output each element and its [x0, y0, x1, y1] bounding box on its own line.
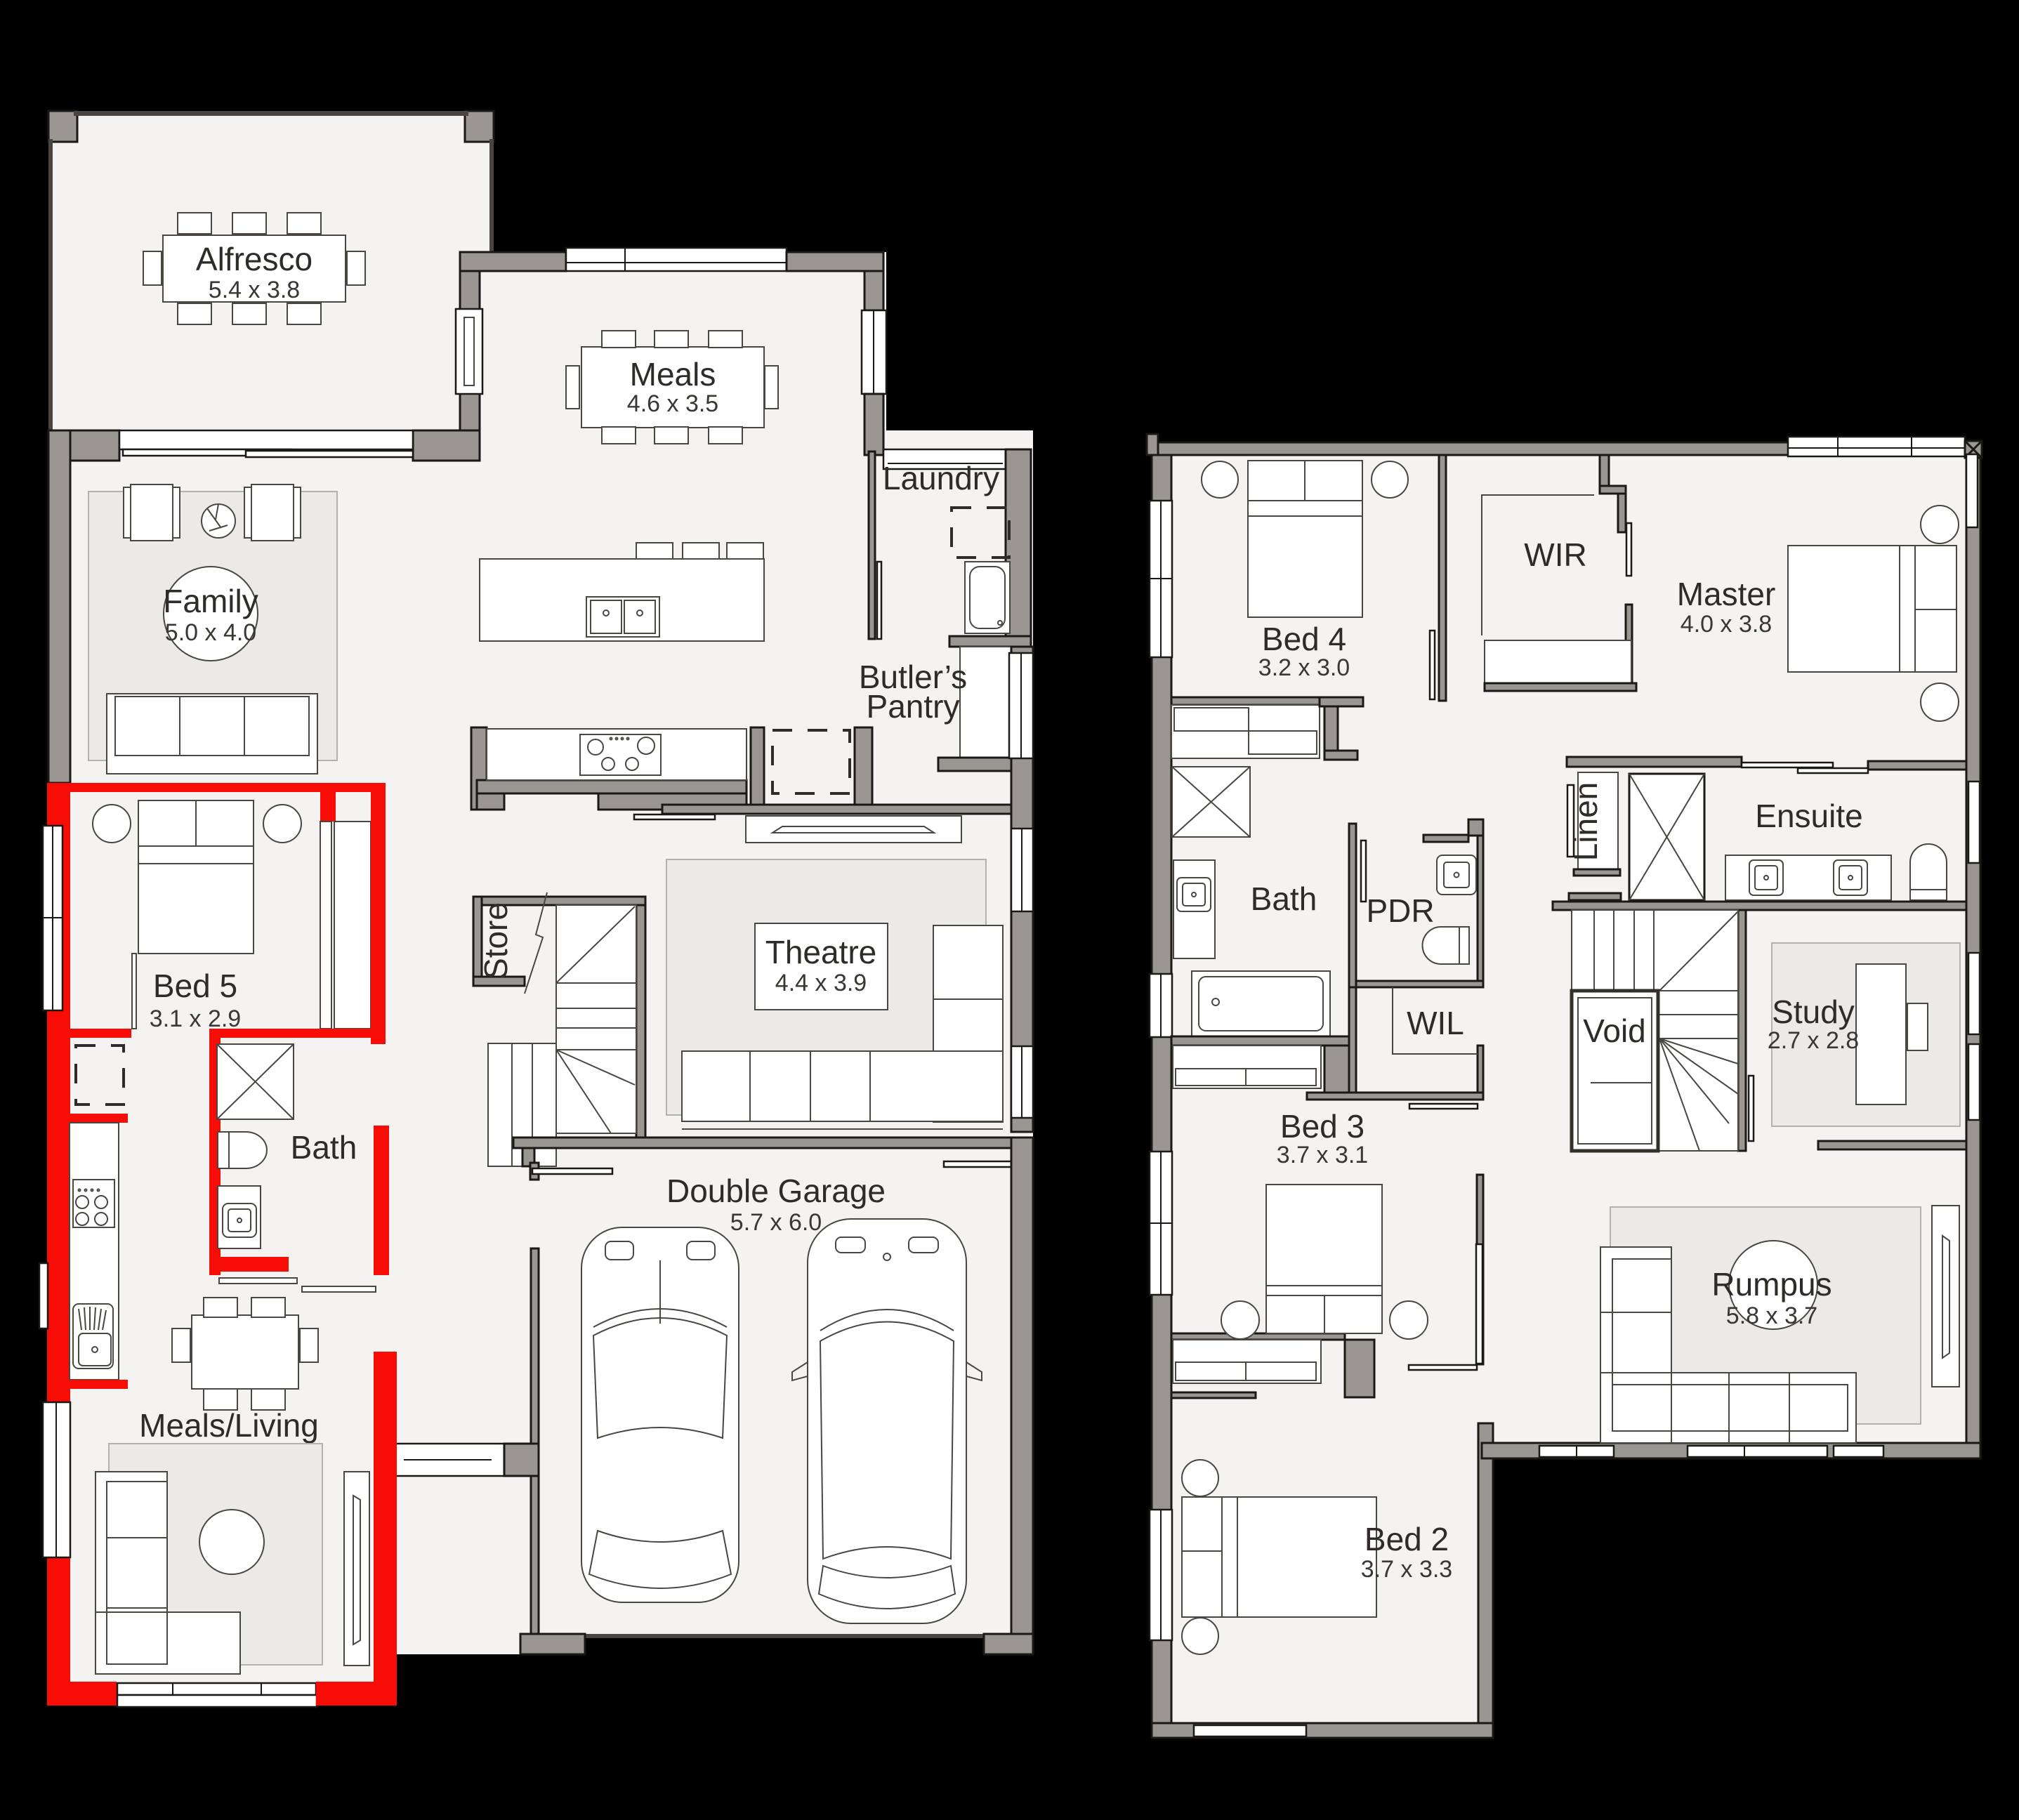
svg-text:Bed 2: Bed 2: [1364, 1521, 1449, 1557]
svg-text:Family: Family: [163, 583, 258, 619]
svg-text:Rumpus: Rumpus: [1711, 1266, 1831, 1303]
svg-text:WIR: WIR: [1524, 536, 1586, 573]
svg-text:Bath: Bath: [291, 1129, 357, 1166]
svg-text:Linen: Linen: [1567, 782, 1604, 862]
svg-text:4.0 x 3.8: 4.0 x 3.8: [1681, 611, 1772, 638]
svg-text:5.0 x 4.0: 5.0 x 4.0: [165, 619, 256, 646]
svg-text:3.7 x 3.3: 3.7 x 3.3: [1361, 1556, 1452, 1583]
svg-text:3.1 x 2.9: 3.1 x 2.9: [150, 1005, 241, 1032]
svg-text:5.7 x 6.0: 5.7 x 6.0: [730, 1209, 822, 1236]
svg-text:Alfresco: Alfresco: [196, 241, 313, 277]
svg-text:4.6 x 3.5: 4.6 x 3.5: [627, 390, 718, 417]
svg-text:PDR: PDR: [1366, 892, 1434, 929]
svg-text:4.4 x 3.9: 4.4 x 3.9: [775, 970, 867, 996]
svg-text:2.7 x 2.8: 2.7 x 2.8: [1768, 1027, 1859, 1054]
svg-text:Bed 4: Bed 4: [1262, 621, 1346, 657]
svg-text:Master: Master: [1677, 576, 1776, 612]
svg-text:Void: Void: [1583, 1013, 1646, 1049]
svg-text:Meals: Meals: [630, 356, 716, 393]
svg-text:3.2 x 3.0: 3.2 x 3.0: [1258, 654, 1350, 681]
svg-text:Bed 5: Bed 5: [153, 968, 237, 1004]
svg-text:Study: Study: [1772, 994, 1855, 1030]
svg-text:Pantry: Pantry: [867, 688, 960, 725]
svg-text:Meals/Living: Meals/Living: [139, 1407, 319, 1444]
svg-text:3.7 x 3.1: 3.7 x 3.1: [1277, 1142, 1368, 1168]
svg-text:Bath: Bath: [1251, 881, 1317, 917]
svg-text:Ensuite: Ensuite: [1755, 798, 1862, 834]
svg-text:Bed 3: Bed 3: [1280, 1108, 1364, 1145]
svg-text:Double Garage: Double Garage: [666, 1173, 886, 1209]
svg-text:Store: Store: [478, 902, 514, 980]
svg-text:WIL: WIL: [1407, 1005, 1464, 1041]
svg-text:5.8 x 3.7: 5.8 x 3.7: [1726, 1303, 1817, 1329]
svg-text:Theatre: Theatre: [765, 934, 877, 970]
svg-text:5.4 x 3.8: 5.4 x 3.8: [209, 277, 300, 303]
svg-text:Laundry: Laundry: [883, 460, 999, 496]
